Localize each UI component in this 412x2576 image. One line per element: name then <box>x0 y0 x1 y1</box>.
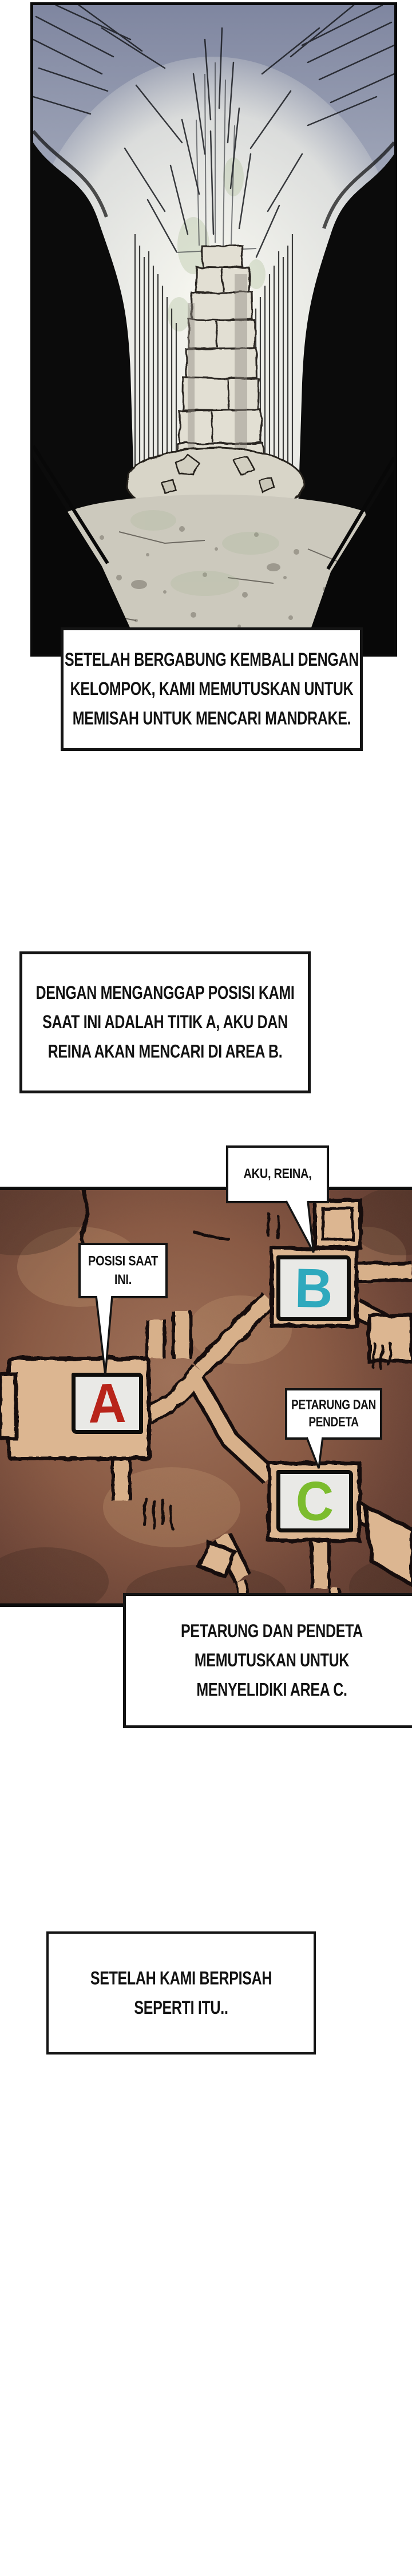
narration-line: SAAT INI ADALAH TITIK A, AKU DAN <box>36 1008 295 1037</box>
narration-box-4: SETELAH KAMI BERPISAH SEPERTI ITU.. <box>46 1931 316 2055</box>
callout-aku-reina-text: AKU, REINA, <box>244 1165 312 1183</box>
map-marker-b: B <box>276 1255 351 1321</box>
callout-petarung-text: PETARUNG DAN PENDETA <box>291 1397 376 1431</box>
map-marker-b-letter: B <box>294 1261 333 1317</box>
narration-line: KELOMPOK, KAMI MEMUTUSKAN UNTUK <box>65 674 359 704</box>
narration-line: SEPERTI ITU.. <box>90 1993 272 2022</box>
narration-box-1: SETELAH BERGABUNG KEMBALI DENGAN KELOMPO… <box>61 627 363 751</box>
narration-line: REINA AKAN MENCARI DI AREA B. <box>36 1037 295 1066</box>
map-top-border <box>0 1187 412 1190</box>
callout-aku-reina-tail <box>280 1198 320 1255</box>
narration-line: SETELAH BERGABUNG KEMBALI DENGAN <box>65 645 359 674</box>
map-marker-c: C <box>276 1470 353 1532</box>
cave-illustration-drawing <box>33 5 394 654</box>
map-marker-c-letter: C <box>296 1473 334 1529</box>
narration-box-2: DENGAN MENGANGGAP POSISI KAMI SAAT INI A… <box>19 951 311 1093</box>
callout-line: POSISI SAAT <box>88 1252 158 1270</box>
cave-panel <box>30 2 397 657</box>
narration-line: SETELAH KAMI BERPISAH <box>90 1963 272 1993</box>
narration-box-3-text: PETARUNG DAN PENDETA MEMUTUSKAN UNTUK ME… <box>181 1617 363 1705</box>
narration-box-3: PETARUNG DAN PENDETA MEMUTUSKAN UNTUK ME… <box>123 1593 412 1728</box>
callout-petarung-tail <box>302 1434 327 1471</box>
narration-box-4-text: SETELAH KAMI BERPISAH SEPERTI ITU.. <box>90 1963 272 2022</box>
narration-line: PETARUNG DAN PENDETA <box>181 1617 363 1646</box>
callout-posisi-text: POSISI SAAT INI. <box>88 1252 158 1289</box>
comic-page: SETELAH BERGABUNG KEMBALI DENGAN KELOMPO… <box>0 0 412 2576</box>
narration-box-1-text: SETELAH BERGABUNG KEMBALI DENGAN KELOMPO… <box>65 645 359 733</box>
callout-line: PETARUNG DAN <box>291 1397 376 1414</box>
callout-aku-reina: AKU, REINA, <box>226 1145 329 1203</box>
callout-posisi-tail <box>92 1293 117 1377</box>
narration-line: MEMISAH UNTUK MENCARI MANDRAKE. <box>65 704 359 733</box>
map-marker-a-letter: A <box>88 1376 126 1432</box>
narration-line: MEMUTUSKAN UNTUK <box>181 1646 363 1675</box>
callout-petarung: PETARUNG DAN PENDETA <box>285 1388 382 1440</box>
map-marker-a: A <box>72 1373 143 1434</box>
callout-line: INI. <box>88 1271 158 1289</box>
callout-line: AKU, REINA, <box>244 1165 312 1183</box>
callout-line: PENDETA <box>291 1414 376 1431</box>
narration-box-2-text: DENGAN MENGANGGAP POSISI KAMI SAAT INI A… <box>36 978 295 1066</box>
narration-line: DENGAN MENGANGGAP POSISI KAMI <box>36 978 295 1008</box>
callout-posisi: POSISI SAAT INI. <box>78 1243 168 1298</box>
narration-line: MENYELIDIKI AREA C. <box>181 1676 363 1705</box>
